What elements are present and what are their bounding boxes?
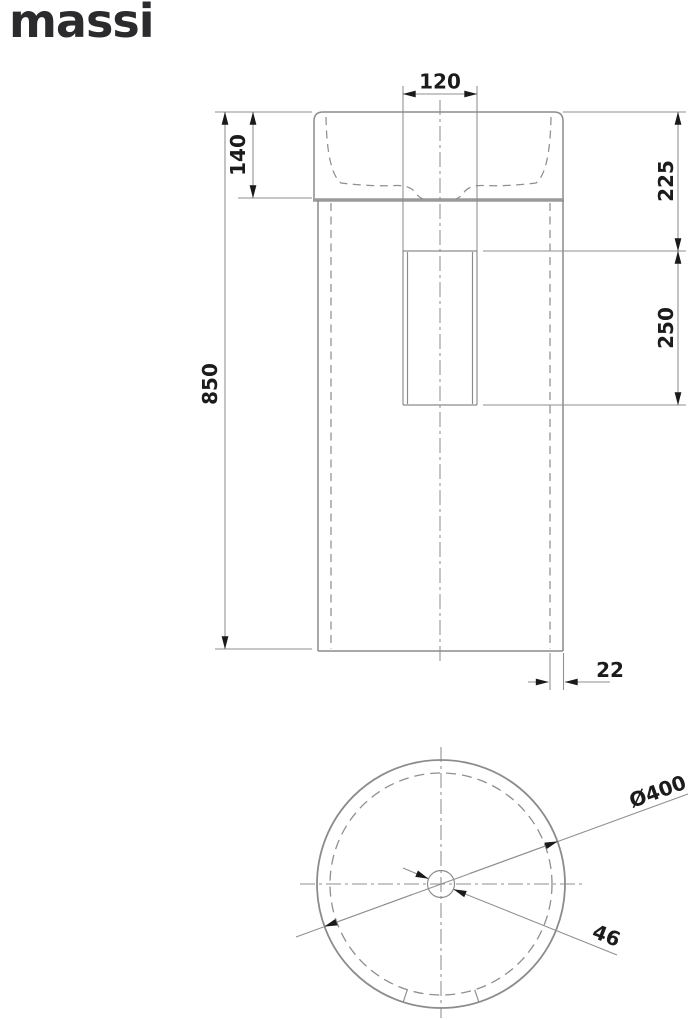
- diameter-arrow-lower: [325, 895, 413, 927]
- opening-mark-right: [475, 990, 479, 1002]
- dim-label-250: 250: [654, 307, 678, 349]
- dimension-width-top: 120: [403, 70, 477, 95]
- opening-mark-left: [403, 990, 407, 1002]
- top-view: Ø400 46: [296, 747, 689, 1018]
- dim-label-22: 22: [596, 658, 624, 682]
- dimension-total-height: 850: [198, 112, 225, 649]
- basin-inner-profile-right: [456, 117, 551, 199]
- drain-leader-lower: [454, 889, 617, 955]
- dim-label-850: 850: [198, 363, 222, 405]
- drain-leader-upper: [403, 868, 428, 879]
- dim-label-140: 140: [226, 134, 250, 176]
- dim-label-diameter: Ø400: [626, 770, 689, 813]
- basin-outline: [314, 112, 563, 199]
- basin-inner-profile-left: [326, 117, 423, 199]
- front-view: 120 140 850 225 250: [198, 70, 686, 691]
- technical-drawing: 120 140 850 225 250: [0, 0, 697, 1020]
- drawing-sheet: massi: [0, 0, 697, 1020]
- dim-label-drain: 46: [589, 919, 624, 951]
- dim-label-120: 120: [419, 70, 461, 94]
- diameter-arrow-upper: [470, 842, 558, 874]
- dimension-wall-thickness: 22: [528, 653, 624, 690]
- dim-label-225: 225: [654, 160, 678, 202]
- dimension-drain-diameter: 46: [403, 868, 624, 955]
- dimension-opening-height: 250: [654, 251, 678, 405]
- dimension-rim-to-opening: 225: [654, 112, 678, 251]
- dimension-basin-height: 140: [226, 112, 253, 198]
